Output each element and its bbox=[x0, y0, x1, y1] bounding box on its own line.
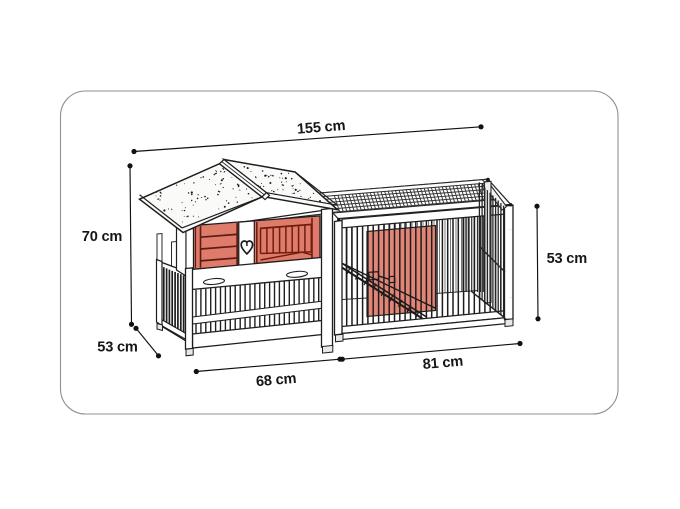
svg-text:70 cm: 70 cm bbox=[82, 229, 123, 245]
svg-text:53 cm: 53 cm bbox=[97, 340, 138, 356]
svg-text:53 cm: 53 cm bbox=[547, 251, 588, 267]
